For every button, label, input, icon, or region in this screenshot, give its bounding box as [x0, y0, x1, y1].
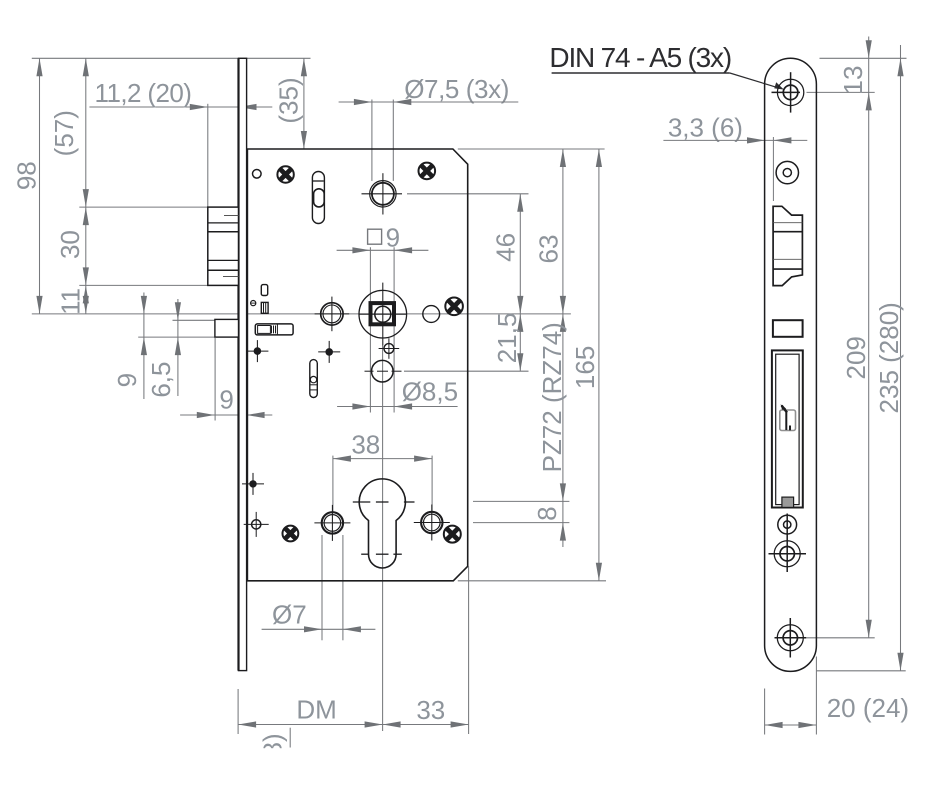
svg-text:11,2 (20): 11,2 (20) [95, 78, 192, 108]
svg-text:98: 98 [11, 161, 41, 190]
svg-text:9: 9 [219, 385, 233, 415]
svg-text:8: 8 [532, 506, 562, 520]
svg-text:9: 9 [386, 222, 400, 252]
svg-text:11: 11 [56, 288, 86, 315]
svg-text:33: 33 [416, 695, 445, 725]
svg-text:DIN 74 - A5 (3x): DIN 74 - A5 (3x) [549, 42, 731, 73]
svg-text:63: 63 [533, 235, 563, 264]
svg-text:Ø7,5 (3x): Ø7,5 (3x) [404, 74, 509, 104]
svg-text:9: 9 [112, 373, 142, 387]
svg-text:165: 165 [570, 346, 600, 389]
svg-text:DM: DM [296, 695, 336, 725]
svg-text:209: 209 [841, 336, 871, 379]
svg-text:(57): (57) [49, 110, 79, 156]
svg-text:38: 38 [351, 429, 380, 459]
svg-text:235 (280): 235 (280) [874, 302, 904, 413]
svg-text:21,5: 21,5 [492, 313, 522, 364]
svg-text:30: 30 [55, 230, 85, 259]
svg-text:(35): (35) [274, 77, 304, 123]
svg-text:3,3 (6): 3,3 (6) [668, 112, 743, 142]
svg-text:Ø7: Ø7 [272, 600, 307, 630]
svg-text:6,5: 6,5 [146, 362, 176, 398]
svg-text:46: 46 [491, 233, 521, 262]
svg-text:20 (24): 20 (24) [827, 693, 909, 723]
svg-text:Ø8,5: Ø8,5 [402, 376, 458, 406]
svg-text:13: 13 [838, 66, 868, 95]
svg-text:PZ72 (RZ74): PZ72 (RZ74) [537, 322, 567, 472]
